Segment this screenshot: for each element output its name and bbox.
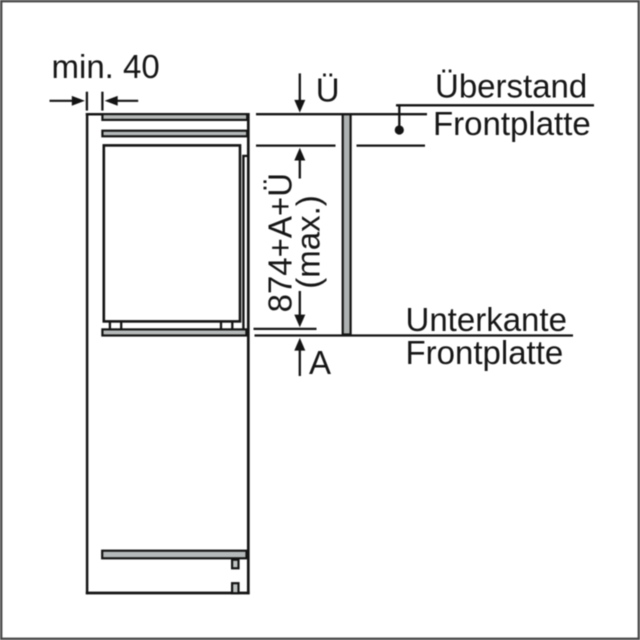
svg-text:Unterkante: Unterkante bbox=[406, 301, 567, 338]
svg-text:Überstand: Überstand bbox=[435, 67, 587, 104]
svg-text:(max.): (max.) bbox=[290, 195, 327, 289]
svg-text:A: A bbox=[309, 344, 331, 381]
svg-text:Frontplatte: Frontplatte bbox=[433, 105, 591, 142]
svg-text:min. 40: min. 40 bbox=[52, 48, 160, 85]
svg-text:Frontplatte: Frontplatte bbox=[406, 334, 564, 371]
svg-text:Ü: Ü bbox=[316, 72, 340, 109]
